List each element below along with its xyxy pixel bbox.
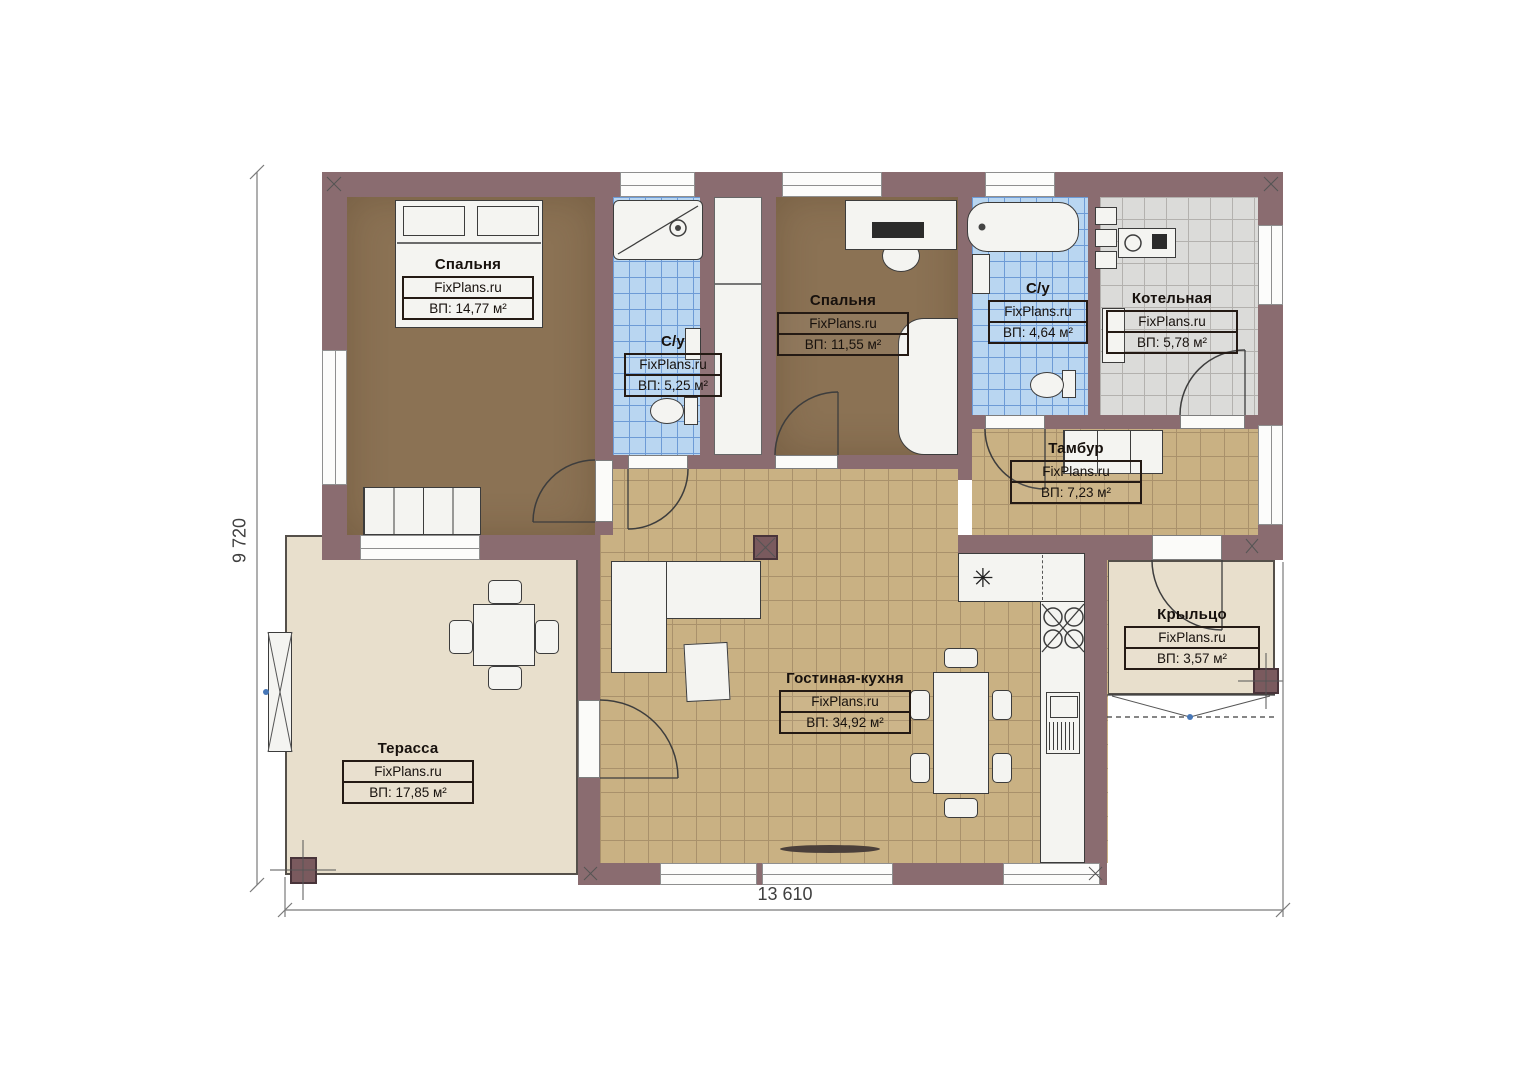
area-box: ВП: 4,64 м²	[988, 321, 1088, 344]
dimension-height: 9 720	[230, 496, 251, 586]
room-label-bedroom1: Спальня FixPlans.ru ВП: 14,77 м²	[402, 256, 534, 320]
brand-box: FixPlans.ru	[779, 690, 911, 713]
room-label-bedroom2: Спальня FixPlans.ru ВП: 11,55 м²	[777, 292, 909, 356]
room-name: Крыльцо	[1124, 606, 1260, 623]
room-label-vestibule: Тамбур FixPlans.ru ВП: 7,23 м²	[1010, 440, 1142, 504]
area-box: ВП: 17,85 м²	[342, 781, 474, 804]
area-box: ВП: 5,25 м²	[624, 374, 722, 397]
area-box: ВП: 34,92 м²	[779, 711, 911, 734]
room-name: Спальня	[402, 256, 534, 273]
area-box: ВП: 3,57 м²	[1124, 647, 1260, 670]
brand-box: FixPlans.ru	[1010, 460, 1142, 483]
brand-box: FixPlans.ru	[342, 760, 474, 783]
room-name: Тамбур	[1010, 440, 1142, 457]
room-label-terrace: Терасса FixPlans.ru ВП: 17,85 м²	[342, 740, 474, 804]
brand-box: FixPlans.ru	[624, 353, 722, 376]
floor-plan-canvas: ✳	[0, 0, 1528, 1080]
brand-box: FixPlans.ru	[777, 312, 909, 335]
room-label-boiler: Котельная FixPlans.ru ВП: 5,78 м²	[1106, 290, 1238, 354]
room-label-living-kitchen: Гостиная-кухня FixPlans.ru ВП: 34,92 м²	[779, 670, 911, 734]
room-name: Котельная	[1106, 290, 1238, 307]
area-box: ВП: 14,77 м²	[402, 297, 534, 320]
brand-box: FixPlans.ru	[988, 300, 1088, 323]
brand-box: FixPlans.ru	[1106, 310, 1238, 333]
room-name: С/у	[624, 333, 722, 350]
area-box: ВП: 11,55 м²	[777, 333, 909, 356]
room-name: С/у	[988, 280, 1088, 297]
room-label-bath2: С/у FixPlans.ru ВП: 4,64 м²	[988, 280, 1088, 344]
brand-box: FixPlans.ru	[402, 276, 534, 299]
area-box: ВП: 5,78 м²	[1106, 331, 1238, 354]
dimension-width: 13 610	[720, 884, 850, 905]
room-label-porch: Крыльцо FixPlans.ru ВП: 3,57 м²	[1124, 606, 1260, 670]
room-name: Гостиная-кухня	[779, 670, 911, 687]
brand-box: FixPlans.ru	[1124, 626, 1260, 649]
area-box: ВП: 7,23 м²	[1010, 481, 1142, 504]
room-name: Терасса	[342, 740, 474, 757]
room-label-bath1: С/у FixPlans.ru ВП: 5,25 м²	[624, 333, 722, 397]
room-name: Спальня	[777, 292, 909, 309]
